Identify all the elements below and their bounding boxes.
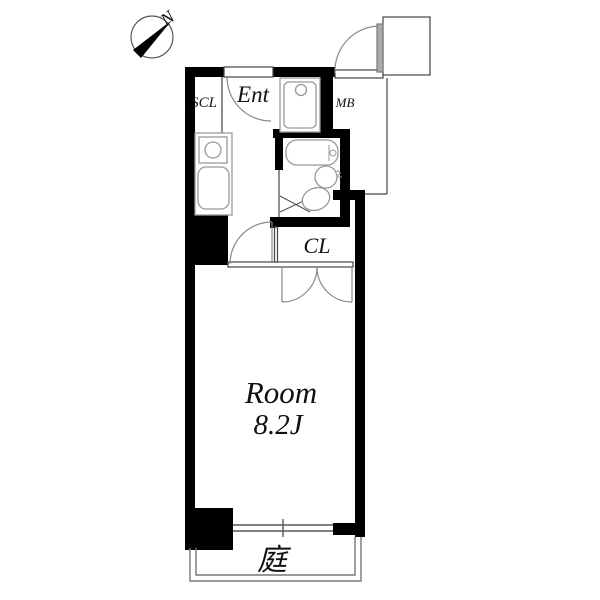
- label-entrance: Ent: [236, 82, 270, 107]
- window: [233, 519, 333, 537]
- label-garden: 庭: [257, 544, 292, 577]
- floor-plan-drawing: N SCL Ent MB CL Room 8.2J 庭: [0, 0, 600, 600]
- floor-plan: N SCL Ent MB CL Room 8.2J 庭: [0, 0, 600, 600]
- kitchen-counter: [195, 133, 232, 215]
- label-meter-box: MB: [335, 95, 355, 110]
- kitchen-sink: [198, 167, 229, 209]
- compass: N: [131, 6, 179, 58]
- bathtub: [286, 140, 338, 165]
- room-door: [230, 222, 272, 264]
- bathroom: [286, 140, 342, 214]
- label-room-name: Room: [244, 375, 317, 410]
- stove-burner: [199, 137, 227, 163]
- wash-basin: [315, 166, 342, 188]
- label-closet: CL: [304, 233, 331, 258]
- closet-doors: [282, 267, 352, 302]
- outer-swing-door: [335, 24, 383, 73]
- label-shoe-closet: SCL: [191, 95, 217, 111]
- label-room-size: 8.2J: [253, 409, 303, 441]
- washing-machine-pan: [280, 78, 320, 132]
